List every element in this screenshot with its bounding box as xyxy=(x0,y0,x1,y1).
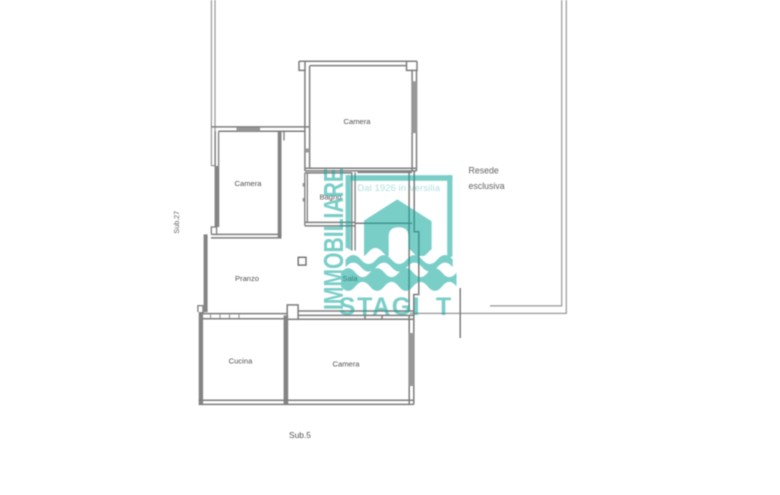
svg-text:Camera: Camera xyxy=(234,179,262,188)
svg-text:esclusiva: esclusiva xyxy=(469,181,505,191)
svg-text:Cucina: Cucina xyxy=(229,357,253,366)
svg-text:Sub.5: Sub.5 xyxy=(289,430,311,440)
svg-text:Resede: Resede xyxy=(469,166,499,176)
svg-text:Camera: Camera xyxy=(332,359,360,368)
svg-text:Pranzo: Pranzo xyxy=(235,274,259,283)
svg-text:Dal 1926 in Versilia: Dal 1926 in Versilia xyxy=(358,183,441,193)
svg-text:Sub.27: Sub.27 xyxy=(172,211,181,234)
svg-text:Camera: Camera xyxy=(343,117,371,126)
svg-text:STAGIT: STAGIT xyxy=(339,293,453,321)
